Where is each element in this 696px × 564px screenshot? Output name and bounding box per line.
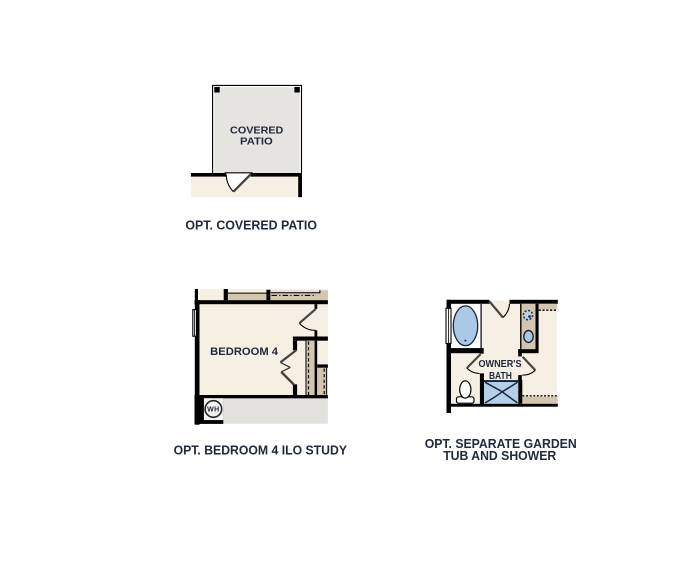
svg-text:W: W <box>207 407 214 414</box>
svg-text:OWNER'S: OWNER'S <box>478 359 521 370</box>
svg-text:OPT. COVERED PATIO: OPT. COVERED PATIO <box>185 217 317 232</box>
svg-text:PATIO: PATIO <box>240 136 273 147</box>
svg-text:TUB AND SHOWER: TUB AND SHOWER <box>443 448 557 463</box>
svg-text:H: H <box>214 407 219 414</box>
svg-text:COVERED: COVERED <box>230 126 283 137</box>
svg-text:OPT. BEDROOM 4 ILO STUDY: OPT. BEDROOM 4 ILO STUDY <box>174 443 348 458</box>
svg-text:BEDROOM 4: BEDROOM 4 <box>210 346 278 358</box>
